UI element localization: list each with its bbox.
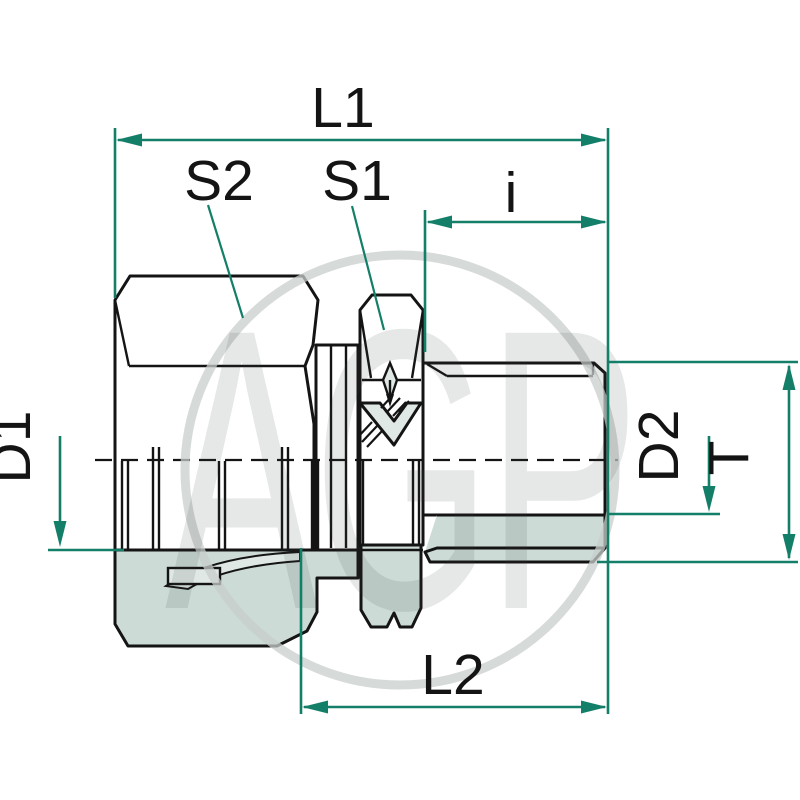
arrow-l2-right [581,701,607,714]
arrow-l2-left [302,701,328,714]
arrow-t-top [783,364,796,390]
technical-drawing-canvas: AGP [0,0,800,800]
label-l2: L2 [421,643,484,707]
label-d2: D2 [627,410,691,483]
fitting-drawing: AGP [0,0,800,800]
label-l1: L1 [311,76,374,140]
arrow-l1-left [116,134,142,147]
watermark-text: AGP [165,246,635,693]
arrow-i-left [426,216,452,229]
arrow-i-right [581,216,607,229]
label-t: T [697,441,761,476]
arrow-d1 [54,521,67,547]
arrow-t-bottom [783,534,796,560]
arrow-d2 [703,486,716,512]
watermark: AGP [165,246,635,693]
label-i: i [505,161,518,225]
label-s2: S2 [184,149,254,213]
arrow-l1-right [581,134,607,147]
label-d1: D1 [0,411,43,484]
label-s1: S1 [322,149,392,213]
